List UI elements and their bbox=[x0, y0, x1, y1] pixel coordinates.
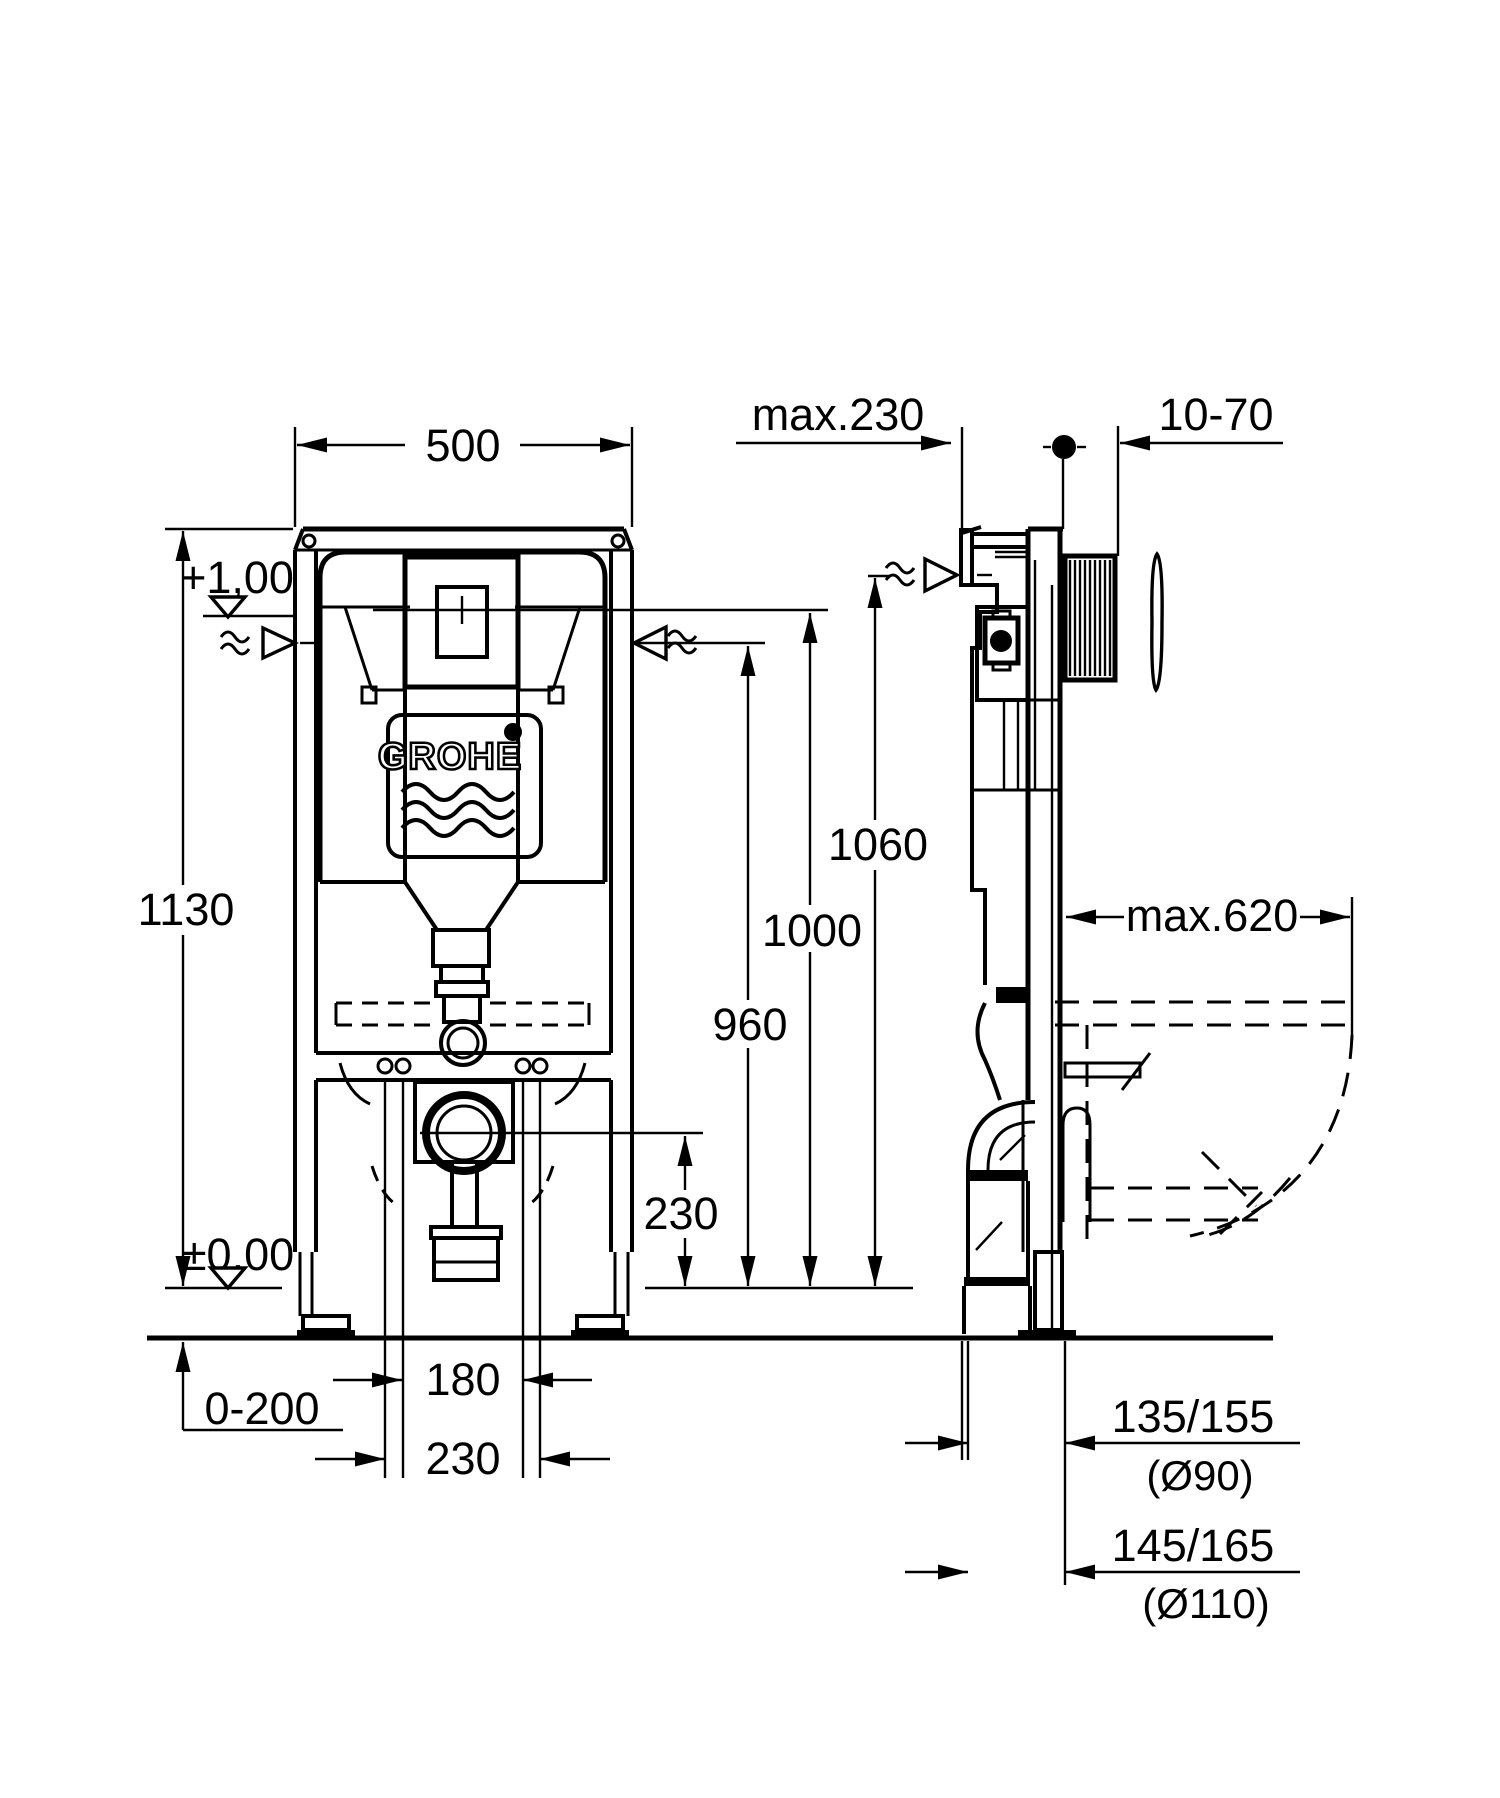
fixing-bolt bbox=[396, 1059, 410, 1073]
fixing-bolt bbox=[533, 1059, 547, 1073]
level-marker-zero: ±0,00 bbox=[182, 1229, 294, 1288]
dim-wall-finish: 10-70 bbox=[1118, 389, 1283, 556]
flush-pipe bbox=[433, 930, 489, 1065]
fixing-bolt bbox=[516, 1059, 530, 1073]
water-supply-icon-left bbox=[221, 628, 316, 658]
dim-supply-height-label: 960 bbox=[712, 999, 787, 1050]
dim-drain-offset-large-pipe-label: (Ø110) bbox=[1142, 1580, 1270, 1627]
dim-drain-offset-large: 145/165 (Ø110) bbox=[905, 1520, 1300, 1627]
bowl-mounting-stud bbox=[1065, 1053, 1150, 1090]
wall-reference-dot bbox=[1043, 435, 1086, 529]
installation-diagram: GROHE bbox=[0, 0, 1500, 1798]
dim-bolt-spacing-outer: 230 bbox=[315, 1433, 610, 1484]
dim-bolt-spacing-inner-label: 180 bbox=[425, 1354, 500, 1405]
inspection-window bbox=[405, 557, 518, 882]
dim-actuator-height: 1000 bbox=[373, 610, 862, 1286]
dim-frame-width: 500 bbox=[295, 420, 632, 527]
logo-wave-icon bbox=[402, 802, 514, 818]
corner-hole bbox=[612, 535, 624, 547]
wall-bracket bbox=[961, 527, 1028, 585]
mounting-crossbar bbox=[316, 1053, 611, 1478]
dim-bolt-spacing-inner: 180 bbox=[333, 1354, 592, 1405]
dim-frame-height-label: 1130 bbox=[138, 884, 235, 935]
logo-wave-icon bbox=[402, 820, 514, 836]
toilet-bowl-outline bbox=[1055, 1002, 1352, 1240]
dim-depth-max: max.230 bbox=[736, 389, 962, 530]
drain-elbow bbox=[964, 1102, 1090, 1334]
fixing-bolt bbox=[378, 1059, 392, 1073]
logo-dot-icon bbox=[504, 723, 522, 741]
reference-dot-icon bbox=[1052, 435, 1076, 459]
supply-valve-fitting bbox=[977, 607, 1028, 700]
level-marker-upper: +1,00 bbox=[180, 552, 294, 617]
dim-frame-width-label: 500 bbox=[425, 420, 500, 471]
side-view bbox=[961, 435, 1352, 1339]
outlet-sleeve bbox=[1063, 1108, 1090, 1222]
dim-depth-max-label: max.230 bbox=[752, 389, 925, 440]
actuator-plate bbox=[1152, 554, 1162, 690]
actuator-housing bbox=[1065, 556, 1115, 680]
front-view-cistern: GROHE bbox=[320, 552, 605, 1280]
hatch-pattern bbox=[1070, 560, 1110, 676]
water-supply-icon-side bbox=[886, 559, 957, 591]
dim-actuator-height-label: 1000 bbox=[762, 905, 862, 956]
dim-wall-finish-label: 10-70 bbox=[1158, 389, 1273, 440]
dim-bowl-projection-label: max.620 bbox=[1126, 890, 1299, 941]
dim-drain-offset-small-label: 135/155 bbox=[1112, 1391, 1275, 1442]
dim-bolt-spacing-outer-label: 230 bbox=[425, 1433, 500, 1484]
dim-bowl-projection: max.620 bbox=[1066, 890, 1352, 1040]
brand-logo-text: GROHE bbox=[378, 736, 522, 778]
level-triangle-icon bbox=[211, 597, 245, 617]
logo-wave-icon bbox=[402, 784, 514, 800]
dim-feet-range-label: 0-200 bbox=[204, 1383, 319, 1434]
corner-hole bbox=[303, 535, 315, 547]
drain-outlet bbox=[415, 1082, 513, 1280]
dim-feet-range: 0-200 bbox=[176, 1342, 344, 1434]
dim-drain-offset-large-label: 145/165 bbox=[1112, 1520, 1275, 1571]
adjustable-feet bbox=[297, 1252, 629, 1339]
technical-drawing-page: GROHE bbox=[0, 0, 1500, 1798]
dim-drain-height-label: 230 bbox=[643, 1188, 718, 1239]
dim-top-height-label: 1060 bbox=[828, 819, 928, 870]
dim-drain-offset-small-pipe-label: (Ø90) bbox=[1146, 1452, 1253, 1499]
